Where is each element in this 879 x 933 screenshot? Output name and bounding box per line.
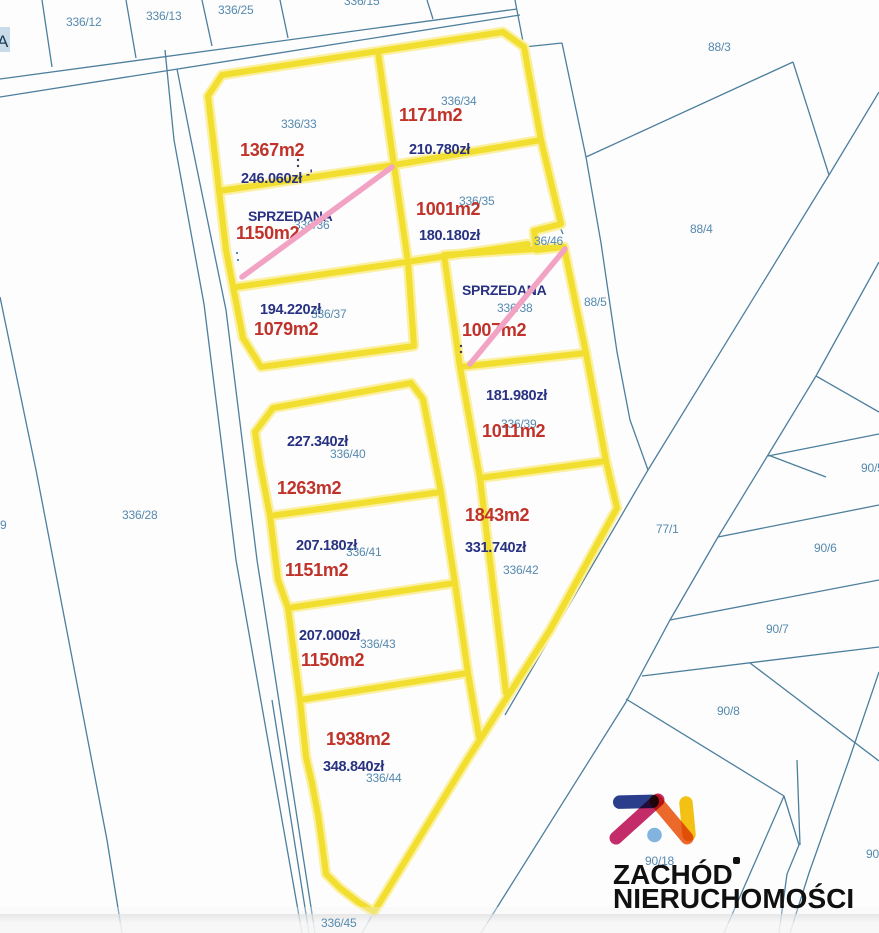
svg-text:336/40: 336/40 [330, 447, 366, 461]
svg-text:336/33: 336/33 [281, 117, 317, 131]
svg-text:88/4: 88/4 [690, 222, 713, 236]
svg-text:1011m2: 1011m2 [482, 421, 546, 441]
svg-text:1843m2: 1843m2 [465, 505, 530, 525]
svg-text:1171m2: 1171m2 [399, 105, 463, 125]
svg-text:1151m2: 1151m2 [285, 560, 349, 580]
svg-text:90/6: 90/6 [814, 541, 837, 555]
svg-text:336/28: 336/28 [122, 508, 158, 522]
svg-text:336/29: 336/29 [0, 518, 7, 532]
svg-text:88/5: 88/5 [584, 295, 607, 309]
svg-text:331.740zł: 331.740zł [465, 540, 526, 556]
svg-text:1938m2: 1938m2 [326, 729, 391, 749]
svg-text:336/41: 336/41 [346, 545, 382, 559]
svg-text:1263m2: 1263m2 [277, 478, 342, 498]
svg-text:1079m2: 1079m2 [254, 319, 319, 339]
svg-text:1367m2: 1367m2 [240, 140, 305, 160]
svg-text:336/15: 336/15 [344, 0, 380, 8]
svg-text:180.180zł: 180.180zł [419, 228, 480, 244]
svg-text:336/42: 336/42 [503, 563, 539, 577]
svg-text:90/5: 90/5 [861, 461, 879, 475]
svg-text:A: A [0, 32, 9, 51]
svg-text:-': -' [306, 167, 313, 181]
svg-text:1150m2: 1150m2 [301, 650, 365, 670]
svg-text:88/3: 88/3 [708, 40, 731, 54]
svg-text:36/46: 36/46 [534, 234, 564, 248]
svg-text:336/43: 336/43 [360, 637, 396, 651]
svg-text:90/8: 90/8 [717, 704, 740, 718]
svg-text:336/12: 336/12 [66, 15, 102, 29]
svg-text:246.060zł: 246.060zł [241, 171, 302, 187]
svg-text:90/9: 90/9 [866, 847, 879, 861]
svg-text:1001m2: 1001m2 [416, 199, 481, 219]
svg-text:181.980zł: 181.980zł [486, 388, 547, 404]
svg-text:336/44: 336/44 [366, 771, 402, 785]
svg-text:210.780zł: 210.780zł [409, 142, 470, 158]
svg-text:90/7: 90/7 [766, 622, 789, 636]
svg-text:336/45: 336/45 [321, 916, 357, 930]
svg-text:336/13: 336/13 [146, 9, 182, 23]
svg-text:336/25: 336/25 [218, 3, 254, 17]
svg-text:207.000zł: 207.000zł [299, 628, 360, 644]
svg-text:NIERUCHOMOŚCI: NIERUCHOMOŚCI [613, 883, 854, 914]
svg-text:77/1: 77/1 [656, 522, 679, 536]
